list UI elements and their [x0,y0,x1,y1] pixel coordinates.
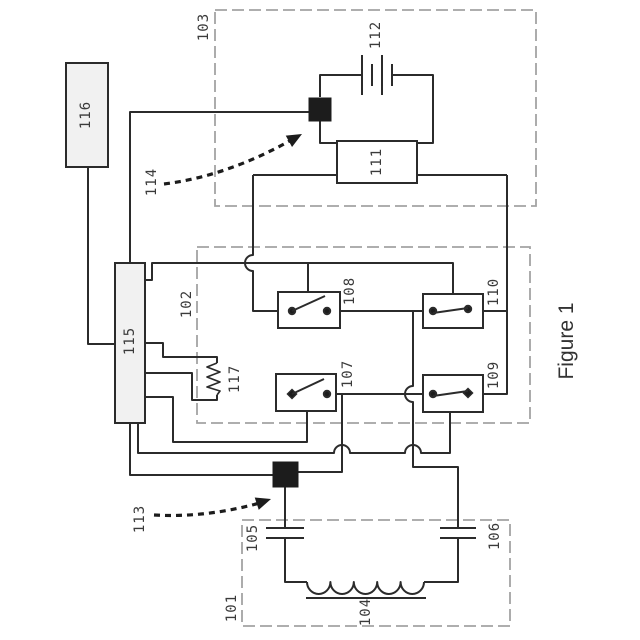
wire-cap105-to-coil [285,538,307,582]
ref-label-108: 108 [342,277,358,305]
circuit-diagram-svg [0,0,640,640]
inductor-104-coil [307,582,424,594]
boundary-box-101 [242,520,510,626]
capacitor-105-plates [266,528,304,538]
arrow-114-curve [164,139,293,184]
component-boxes [66,63,483,423]
ref-label-117: 117 [227,365,243,393]
resistor-117-zigzag [207,363,220,395]
ref-label-112: 112 [368,21,384,49]
ref-label-107: 107 [340,360,356,388]
wire-cap106-to-coil [424,538,458,582]
ref-label-103: 103 [196,13,212,41]
wire-116-to-115 [88,167,115,344]
ref-label-110: 110 [486,278,502,306]
ref-label-111: 111 [369,148,385,176]
wire-111-to-108 [245,175,278,311]
wire-loop-topleft [320,75,362,97]
patent-figure-1: 101 102 103 104 105 106 107 108 109 110 … [0,0,640,640]
arrow-113-curve [154,502,263,515]
ref-label-105: 105 [245,524,261,552]
ref-label-116: 116 [78,101,94,129]
switch-108-right-contact [324,308,330,314]
arrow-113-head [255,493,273,510]
figure-caption: Figure 1 [555,302,579,379]
wire-115-to-connector-113 [130,423,273,475]
ref-label-115: 115 [122,327,138,355]
capacitor-106-plates [440,528,476,538]
ref-label-104: 104 [358,598,374,626]
ref-label-101: 101 [224,594,240,622]
wire-resistor-top-lead [145,343,217,363]
wire-loop-topright [392,75,433,143]
wire-control-109 [138,412,450,453]
ref-label-109: 109 [486,361,502,389]
arrow-114-head [286,128,305,147]
ref-label-114: 114 [144,168,160,196]
connector-square-114 [309,98,331,121]
ref-label-102: 102 [179,290,195,318]
ref-label-113: 113 [132,505,148,533]
ref-label-106: 106 [487,522,503,550]
switch-107-right-contact [324,391,330,397]
wire-loop-bottomleft [320,121,337,143]
connector-square-113 [273,462,298,487]
